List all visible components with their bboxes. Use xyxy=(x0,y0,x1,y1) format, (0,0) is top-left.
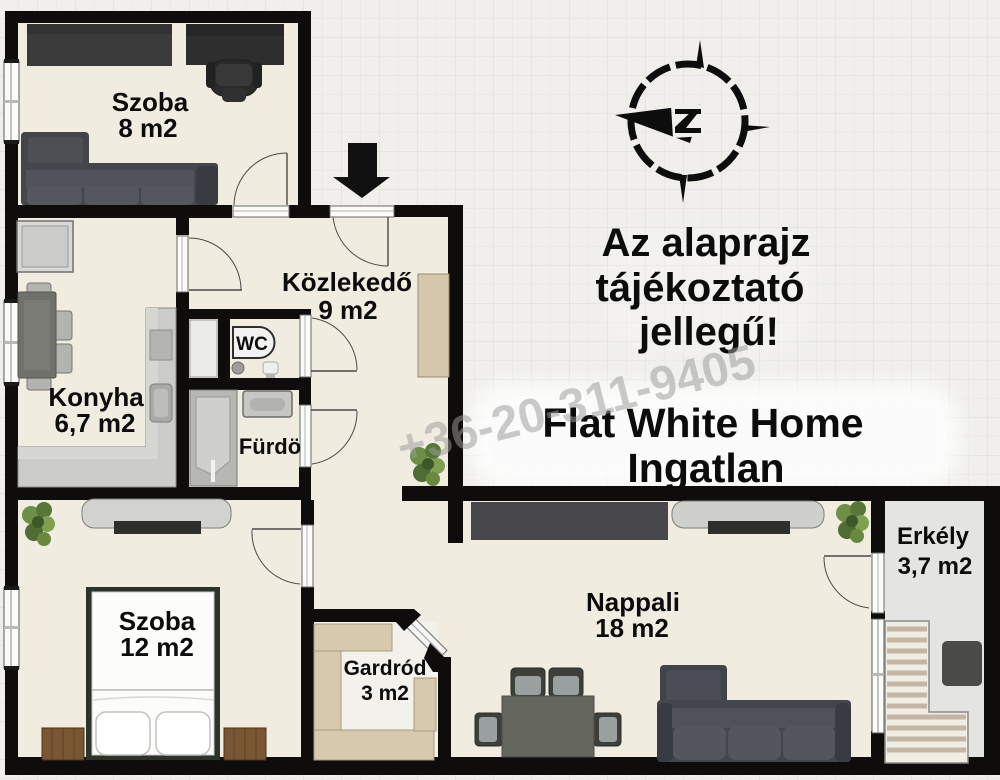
svg-text:Erkély: Erkély xyxy=(897,523,970,550)
svg-text:9 m2: 9 m2 xyxy=(318,295,377,325)
svg-text:Gardród: Gardród xyxy=(344,657,427,680)
svg-text:Közlekedő: Közlekedő xyxy=(282,267,412,297)
svg-text:Fürdö: Fürdö xyxy=(239,434,301,459)
svg-text:3 m2: 3 m2 xyxy=(361,682,409,705)
svg-text:6,7 m2: 6,7 m2 xyxy=(55,408,136,438)
svg-text:8 m2: 8 m2 xyxy=(118,113,177,143)
svg-text:12 m2: 12 m2 xyxy=(120,632,194,662)
svg-text:Ingatlan: Ingatlan xyxy=(627,445,784,491)
svg-text:3,7 m2: 3,7 m2 xyxy=(898,553,973,580)
svg-text:18 m2: 18 m2 xyxy=(595,613,669,643)
svg-text:WC: WC xyxy=(236,334,268,355)
svg-text:tájékoztató: tájékoztató xyxy=(596,266,805,310)
svg-text:Az alaprajz: Az alaprajz xyxy=(602,221,811,265)
